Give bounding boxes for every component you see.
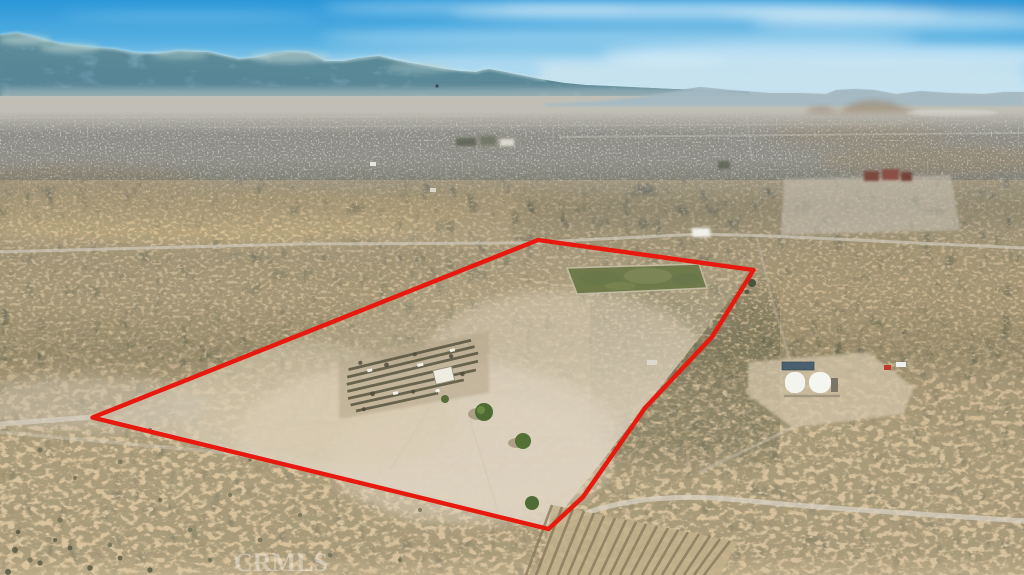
svg-text:CRMLS: CRMLS bbox=[234, 548, 328, 575]
